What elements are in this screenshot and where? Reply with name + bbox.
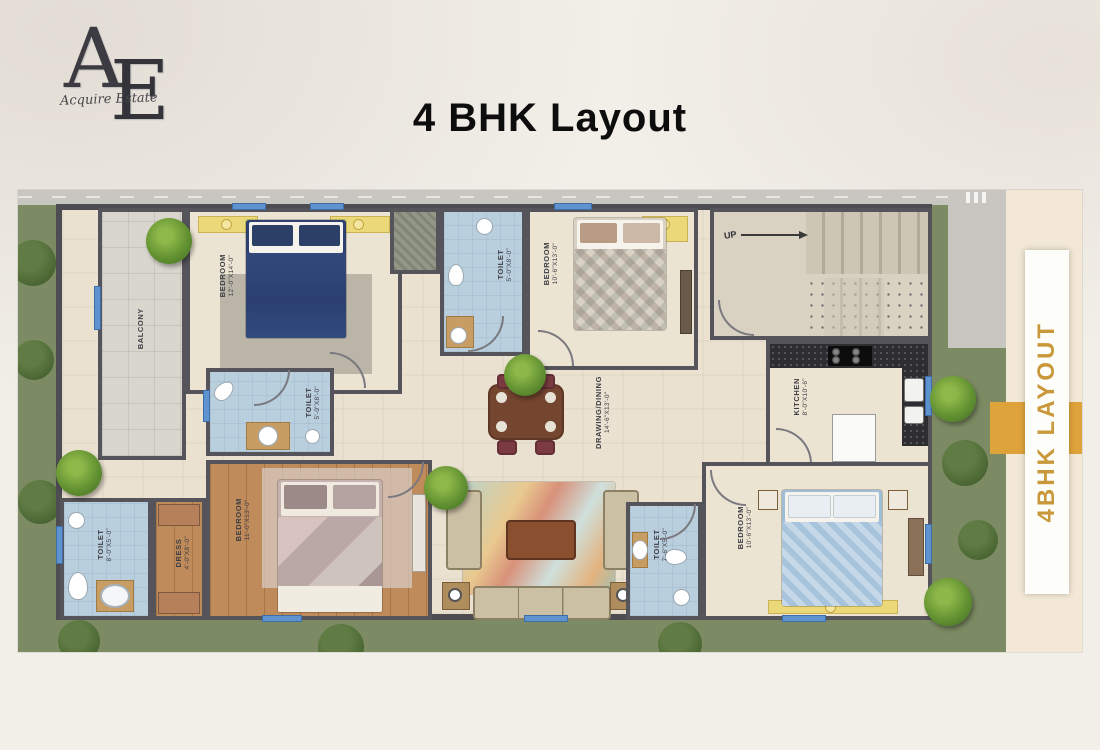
chair-icon: [497, 440, 517, 455]
dress-room: DRESS 4'-0"X8'-0": [152, 498, 206, 620]
door-arc: [468, 316, 504, 352]
room-label: TOILET 8'-0"X5'-0": [96, 528, 115, 562]
tree-icon: [924, 578, 972, 626]
toilet-2: TOILET 5'-0"X8'-0": [206, 368, 334, 456]
kitchen: KITCHEN 8'-0"X10'-6": [766, 340, 932, 468]
bush: [958, 520, 998, 560]
planter-icon: [221, 219, 232, 230]
window: [524, 615, 568, 622]
bedroom-3: BEDROOM 11'-0"X13'-0": [206, 460, 432, 620]
bedroom-1: BEDROOM 12'-0"X14'-0": [186, 208, 402, 394]
door-arc: [718, 300, 754, 336]
fridge-icon: [832, 414, 876, 462]
stove-icon: [828, 346, 872, 366]
wardrobe: [158, 592, 200, 614]
bush: [318, 624, 364, 652]
tree-icon: [424, 466, 468, 510]
dresser: [680, 270, 692, 334]
sink-icon: [632, 540, 648, 560]
chair-icon: [535, 440, 555, 455]
plate-icon: [496, 421, 507, 432]
speaker-icon: [448, 588, 462, 602]
utility-block: [390, 208, 440, 274]
nightstand: [888, 490, 908, 510]
door-arc: [388, 462, 424, 498]
bush: [18, 340, 54, 380]
toilet-icon: [68, 572, 88, 600]
up-label: UP: [723, 229, 737, 241]
toilet-icon: [211, 378, 238, 405]
dresser: [412, 494, 426, 572]
bed-icon: [246, 220, 346, 338]
planter-icon: [353, 219, 364, 230]
room-label: BALCONY: [136, 308, 146, 349]
sink-icon: [305, 429, 320, 444]
room-label: KITCHEN 8'-0"X10'-6": [792, 378, 811, 416]
toilet-4: TOILET 7'-6"X5'-0": [626, 502, 702, 620]
side-banner: 4BHK LAYOUT: [1025, 250, 1069, 594]
toilet-1: TOILET 5'-0"X8'-0": [440, 208, 526, 356]
tree-icon: [504, 354, 546, 396]
side-table: [442, 582, 470, 610]
door-arc: [660, 504, 696, 540]
window: [554, 203, 592, 210]
window: [232, 203, 266, 210]
window: [94, 286, 101, 330]
bed-icon: [278, 480, 382, 612]
sink-icon: [904, 378, 924, 402]
door-arc: [710, 470, 746, 506]
room-label: TOILET 5'-0"X8'-0": [496, 248, 515, 282]
coffee-table: [506, 520, 576, 560]
dresser: [908, 518, 924, 576]
road-crossing: [966, 192, 990, 203]
road-right: [948, 190, 1006, 348]
window: [782, 615, 826, 622]
bush: [942, 440, 988, 486]
floor-plan-image: 4BHK LAYOUT BALCONY BEDROOM 12'-0"X14'-0…: [18, 190, 1082, 652]
sink-icon: [673, 589, 690, 606]
arrow-icon: [741, 234, 799, 236]
page: A E Acquire Estate 4 BHK Layout 4BHK LAY…: [0, 0, 1100, 750]
bed-fold: [278, 586, 382, 612]
toilet-3: TOILET 8'-0"X5'-0": [60, 498, 152, 620]
room-label: BEDROOM 12'-0"X14'-0": [218, 254, 237, 297]
wardrobe: [158, 504, 200, 526]
sink-icon: [68, 512, 85, 529]
sink-icon: [258, 426, 278, 446]
toilet-icon: [448, 264, 464, 286]
door-arc: [776, 428, 812, 464]
room-label: BEDROOM 10'-6"X13'-0": [736, 506, 755, 549]
plate-icon: [545, 392, 556, 403]
door-arc: [538, 330, 574, 366]
window: [262, 615, 302, 622]
plate-icon: [496, 392, 507, 403]
bush: [58, 620, 100, 652]
room-label: DRESS 4'-0"X8'-0": [174, 536, 193, 570]
door-arc: [254, 370, 290, 406]
bush: [658, 622, 702, 652]
side-banner-text: 4BHK LAYOUT: [1033, 321, 1061, 522]
bedroom-2: BEDROOM 10'-6"X13'-0": [526, 208, 698, 370]
window: [310, 203, 344, 210]
tree-icon: [56, 450, 102, 496]
tree-icon: [146, 218, 192, 264]
bed-icon: [782, 490, 882, 606]
window: [925, 524, 932, 564]
nightstand: [758, 490, 778, 510]
plate-icon: [545, 421, 556, 432]
page-title: 4 BHK Layout: [0, 96, 1100, 141]
bush: [18, 240, 56, 286]
bed-icon: [574, 218, 666, 330]
sink-icon: [450, 327, 467, 344]
up-arrow: UP: [724, 230, 799, 240]
hall-label: DRAWING/DINING 14'-6"X13'-0": [594, 376, 613, 449]
bedroom-4: BEDROOM 10'-6"X13'-0": [702, 462, 932, 620]
road-top: [18, 190, 1082, 205]
room-label: BEDROOM 10'-6"X13'-0": [542, 242, 561, 285]
window: [56, 526, 63, 564]
window: [203, 390, 210, 422]
tree-icon: [930, 376, 976, 422]
stair-steps: [824, 278, 884, 336]
stair-steps: [806, 212, 928, 274]
sink-icon: [476, 218, 493, 235]
room-label: TOILET 5'-0"X8'-0": [304, 386, 323, 420]
sink-icon: [904, 406, 924, 424]
room-label: BEDROOM 11'-0"X13'-0": [234, 498, 253, 541]
shower-tray: [100, 584, 130, 608]
staircase: UP: [710, 208, 932, 340]
